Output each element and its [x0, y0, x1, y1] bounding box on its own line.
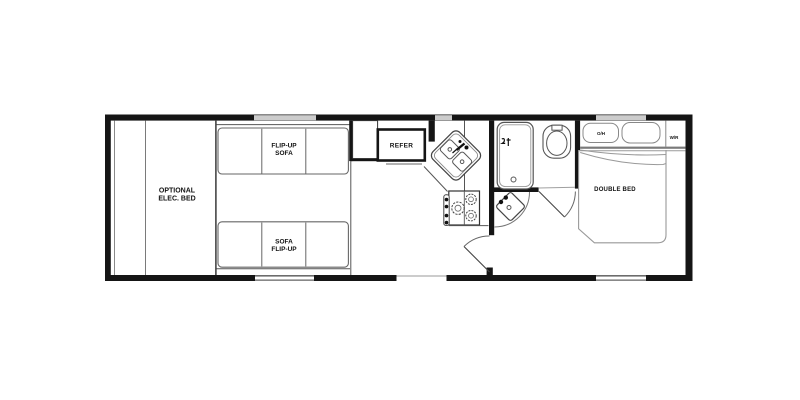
- svg-text:SOFA: SOFA: [275, 239, 293, 246]
- svg-text:W/R: W/R: [670, 135, 679, 140]
- svg-text:ELEC. BED: ELEC. BED: [158, 196, 195, 203]
- svg-text:O/H: O/H: [597, 131, 605, 136]
- svg-text:FLIP-UP: FLIP-UP: [271, 246, 297, 253]
- svg-text:FLIP-UP: FLIP-UP: [271, 143, 297, 150]
- svg-text:DOUBLE BED: DOUBLE BED: [594, 187, 636, 193]
- svg-text:SOFA: SOFA: [275, 150, 293, 157]
- svg-text:OPTIONAL: OPTIONAL: [159, 188, 196, 195]
- svg-text:REFER: REFER: [390, 142, 414, 149]
